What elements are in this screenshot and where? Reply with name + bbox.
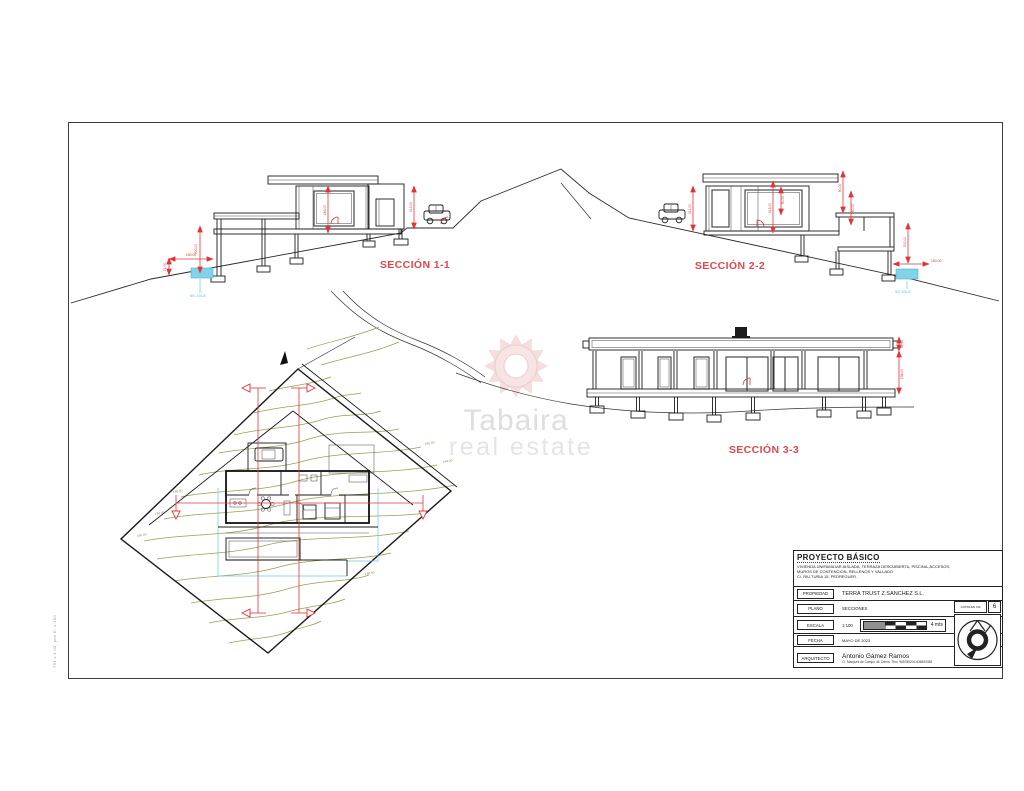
escala-value: 1:100	[842, 623, 853, 628]
dim-label: 313.00	[409, 202, 413, 212]
door-swing-mark	[331, 217, 338, 224]
contour-label: 186.00	[172, 488, 183, 494]
section-1-1-label: SECCIÓN 1-1	[380, 258, 450, 271]
dim-label: 311.00	[688, 204, 692, 214]
section-2-2-drawing: NIV. AGUA 311.00 416.00 50.00	[659, 171, 941, 294]
floor-slab	[214, 229, 401, 234]
arquitecto-value: Antonio Gámez Ramos C/. Marqués de Campo…	[842, 653, 932, 664]
architect-contact: C/. Marqués de Campo 46. Dénia. Tfno. 96…	[842, 660, 932, 664]
dim-label: 90.00	[838, 184, 842, 193]
footing	[830, 269, 843, 275]
water-level-label: NIV. AGUA	[895, 290, 912, 294]
project-description: VIVIENDA UNIFAMILIAR AISLADA, TERRAZA DE…	[797, 564, 999, 579]
pool-section	[191, 268, 213, 278]
footing	[882, 275, 895, 281]
section-1-1-drawing: NIV. AGUA 300.00 150.00	[163, 176, 450, 298]
architect-name: Antonio Gámez Ramos	[842, 653, 932, 660]
watermark-tagline: real estate	[449, 433, 593, 461]
section-3-3-label: SECCIÓN 3-3	[729, 443, 799, 456]
contour-label: 196.00	[364, 570, 375, 576]
wardrobe	[349, 475, 367, 482]
plano-label: PLANO	[797, 604, 834, 614]
sheet-number: 6	[988, 601, 1001, 613]
drawing-sheet: 794 x 4 00. pml E: 1:100	[0, 0, 1024, 791]
footing	[363, 241, 375, 247]
dim-label: 283.00	[323, 205, 327, 215]
fecha-value: MAYO DE 2023	[842, 638, 870, 643]
section-arrow	[242, 384, 250, 392]
plot-boundary	[121, 369, 451, 653]
project-title: PROYECTO BÁSICO	[797, 553, 880, 563]
architect-stamp	[954, 614, 1001, 666]
floor-slab	[704, 231, 839, 235]
dim-label: 150.00	[186, 253, 196, 257]
bed	[303, 505, 316, 519]
dim-label: 30.00	[900, 340, 904, 349]
roof-slab	[589, 338, 893, 350]
plot-margin-stamp: 794 x 4 00. pml E: 1:100	[52, 615, 57, 668]
scale-bar-graphic	[863, 621, 927, 630]
watermark: Tabaira real estate	[449, 335, 593, 461]
propiedad-label: PROPIEDAD	[797, 589, 834, 599]
scale-units: 4 mts	[931, 622, 943, 628]
dim-label: 150.00	[931, 259, 941, 263]
site-plan-drawing: 186.00 188.00 190.00 192.00 194.00 196.0…	[121, 327, 457, 653]
contour-label: 194.00	[442, 458, 453, 464]
arquitecto-label: ARQUITECTO	[797, 653, 834, 663]
dim-label: 238.00	[900, 369, 904, 379]
dim-label: 50.00	[781, 196, 785, 205]
pool-section	[896, 269, 918, 279]
footing	[290, 258, 303, 264]
footing	[394, 239, 408, 245]
escala-label: ESCALA	[797, 620, 834, 630]
dining-table	[262, 500, 271, 509]
house-walls	[226, 471, 369, 523]
terrace-and-pool-plan	[218, 527, 378, 576]
bed	[325, 503, 340, 519]
footing	[257, 266, 270, 272]
footing	[795, 256, 808, 262]
plano-value: SECCIONES	[842, 606, 867, 611]
fecha-label: FECHA	[797, 635, 834, 645]
pillars-and-footings	[590, 397, 891, 422]
title-block: PROYECTO BÁSICO VIVIENDA UNIFAMILIAR AIS…	[793, 550, 1003, 668]
terrain-profile	[71, 169, 999, 303]
setback-line	[149, 411, 293, 525]
dim-label: 71.00	[163, 263, 167, 272]
glass-room	[296, 186, 369, 229]
contour-lines	[144, 327, 455, 643]
section-3-3-drawing: 30.00 238.00 SECCIÓN 3-3	[583, 327, 904, 456]
propiedad-row: PROPIEDAD TERRA TRUST Z.SANCHEZ S.L.	[794, 587, 1002, 601]
propiedad-value: TERRA TRUST Z.SANCHEZ S.L.	[842, 591, 924, 597]
cotas-units-box: COTAS EN CM	[954, 601, 987, 613]
scale-bar: 4 mts	[860, 619, 946, 632]
terrace-slab	[836, 213, 894, 217]
door	[376, 199, 394, 226]
dim-label: 360.00	[851, 204, 855, 214]
road-curve	[331, 291, 481, 383]
contour-label: 192.00	[424, 440, 435, 446]
stamp-logo-icon	[955, 615, 1000, 665]
project-header: PROYECTO BÁSICO VIVIENDA UNIFAMILIAR AIS…	[794, 551, 1002, 587]
water-level-label: NIV. AGUA	[190, 294, 207, 298]
north-mark-icon	[280, 351, 288, 365]
car-icon	[659, 204, 685, 223]
dim-label: 300.00	[903, 237, 907, 247]
dim-label: 416.00	[768, 203, 772, 213]
contour-label: 190.00	[136, 532, 147, 538]
section-2-2-label: SECCIÓN 2-2	[695, 259, 765, 272]
sun-logo-icon	[485, 335, 547, 397]
car-icon	[424, 205, 450, 224]
sheet-border-frame: Tabaira real estate	[68, 122, 1003, 679]
